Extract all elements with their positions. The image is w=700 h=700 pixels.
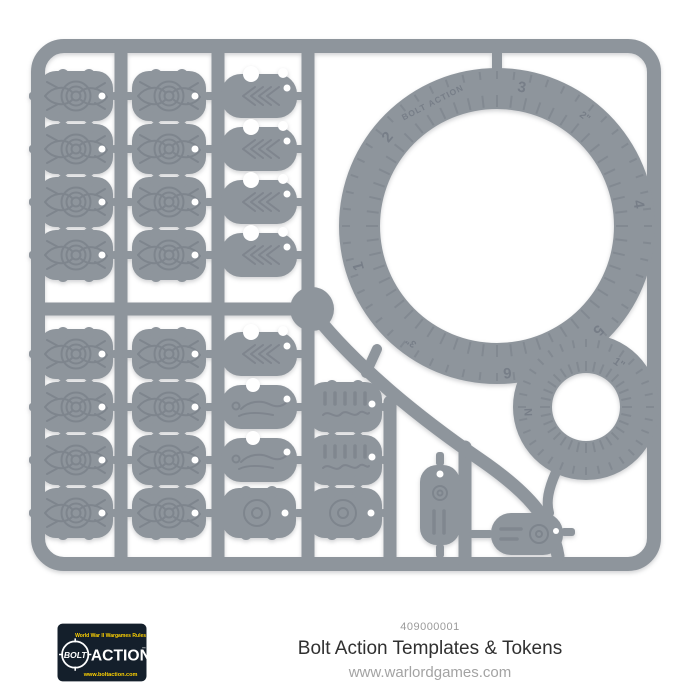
arrow-tokens	[212, 66, 306, 376]
pin-marker-token	[122, 228, 216, 282]
logo-word-action: ACTION	[91, 648, 147, 665]
caption-block: 409000001 Bolt Action Templates & Tokens…	[160, 620, 700, 682]
large-ring-template: 3 2" 4 5 6 3" 1 2 BOLT ACTION	[339, 68, 655, 384]
ring-mark: 6	[503, 364, 513, 382]
pin-marker-token	[122, 380, 216, 434]
product-photo: 3 2" 4 5 6 3" 1 2 BOLT ACTION 1" N	[0, 0, 700, 700]
product-website: www.warlordgames.com	[160, 664, 700, 682]
logo-word-bolt: BOLT	[64, 650, 87, 660]
round-token	[212, 486, 306, 540]
pin-marker-token	[122, 486, 216, 540]
logo-url: www.boltaction.com	[83, 672, 138, 678]
logo-trademark: ™	[142, 646, 146, 650]
runner-junction	[290, 287, 334, 331]
product-title: Bolt Action Templates & Tokens	[160, 636, 700, 662]
arrow-token	[212, 119, 306, 171]
pin-marker-token	[122, 122, 216, 176]
pin-marker-token	[29, 228, 123, 282]
pin-marker-token	[122, 175, 216, 229]
sprue-image: 3 2" 4 5 6 3" 1 2 BOLT ACTION 1" N	[0, 0, 700, 610]
small-ring-template: 1" N	[513, 334, 659, 480]
arrow-token	[212, 225, 306, 277]
pin-marker-token	[122, 433, 216, 487]
pin-marker-token	[29, 380, 123, 434]
barrier-token	[298, 433, 392, 487]
arrow-token	[212, 324, 306, 376]
pin-marker-token	[29, 486, 123, 540]
barrier-token	[298, 380, 392, 434]
arrow-token	[212, 66, 306, 118]
prone-token	[212, 431, 306, 482]
ring-mark: N	[523, 408, 535, 416]
arrow-token	[212, 172, 306, 224]
pin-marker-token	[122, 327, 216, 381]
prone-token	[212, 378, 306, 429]
pin-marker-token	[29, 327, 123, 381]
product-sku: 409000001	[160, 620, 700, 634]
pin-marker-token	[122, 69, 216, 123]
pin-marker-token	[29, 175, 123, 229]
pin-marker-token	[29, 433, 123, 487]
prone-tokens	[212, 378, 306, 482]
round-token	[298, 486, 392, 540]
logo-tagline: World War II Wargames Rules	[75, 633, 146, 639]
pin-marker-token	[29, 122, 123, 176]
pin-marker-token	[29, 69, 123, 123]
bolt-action-logo: World War II Wargames Rules BOLT ACTION …	[57, 623, 147, 682]
